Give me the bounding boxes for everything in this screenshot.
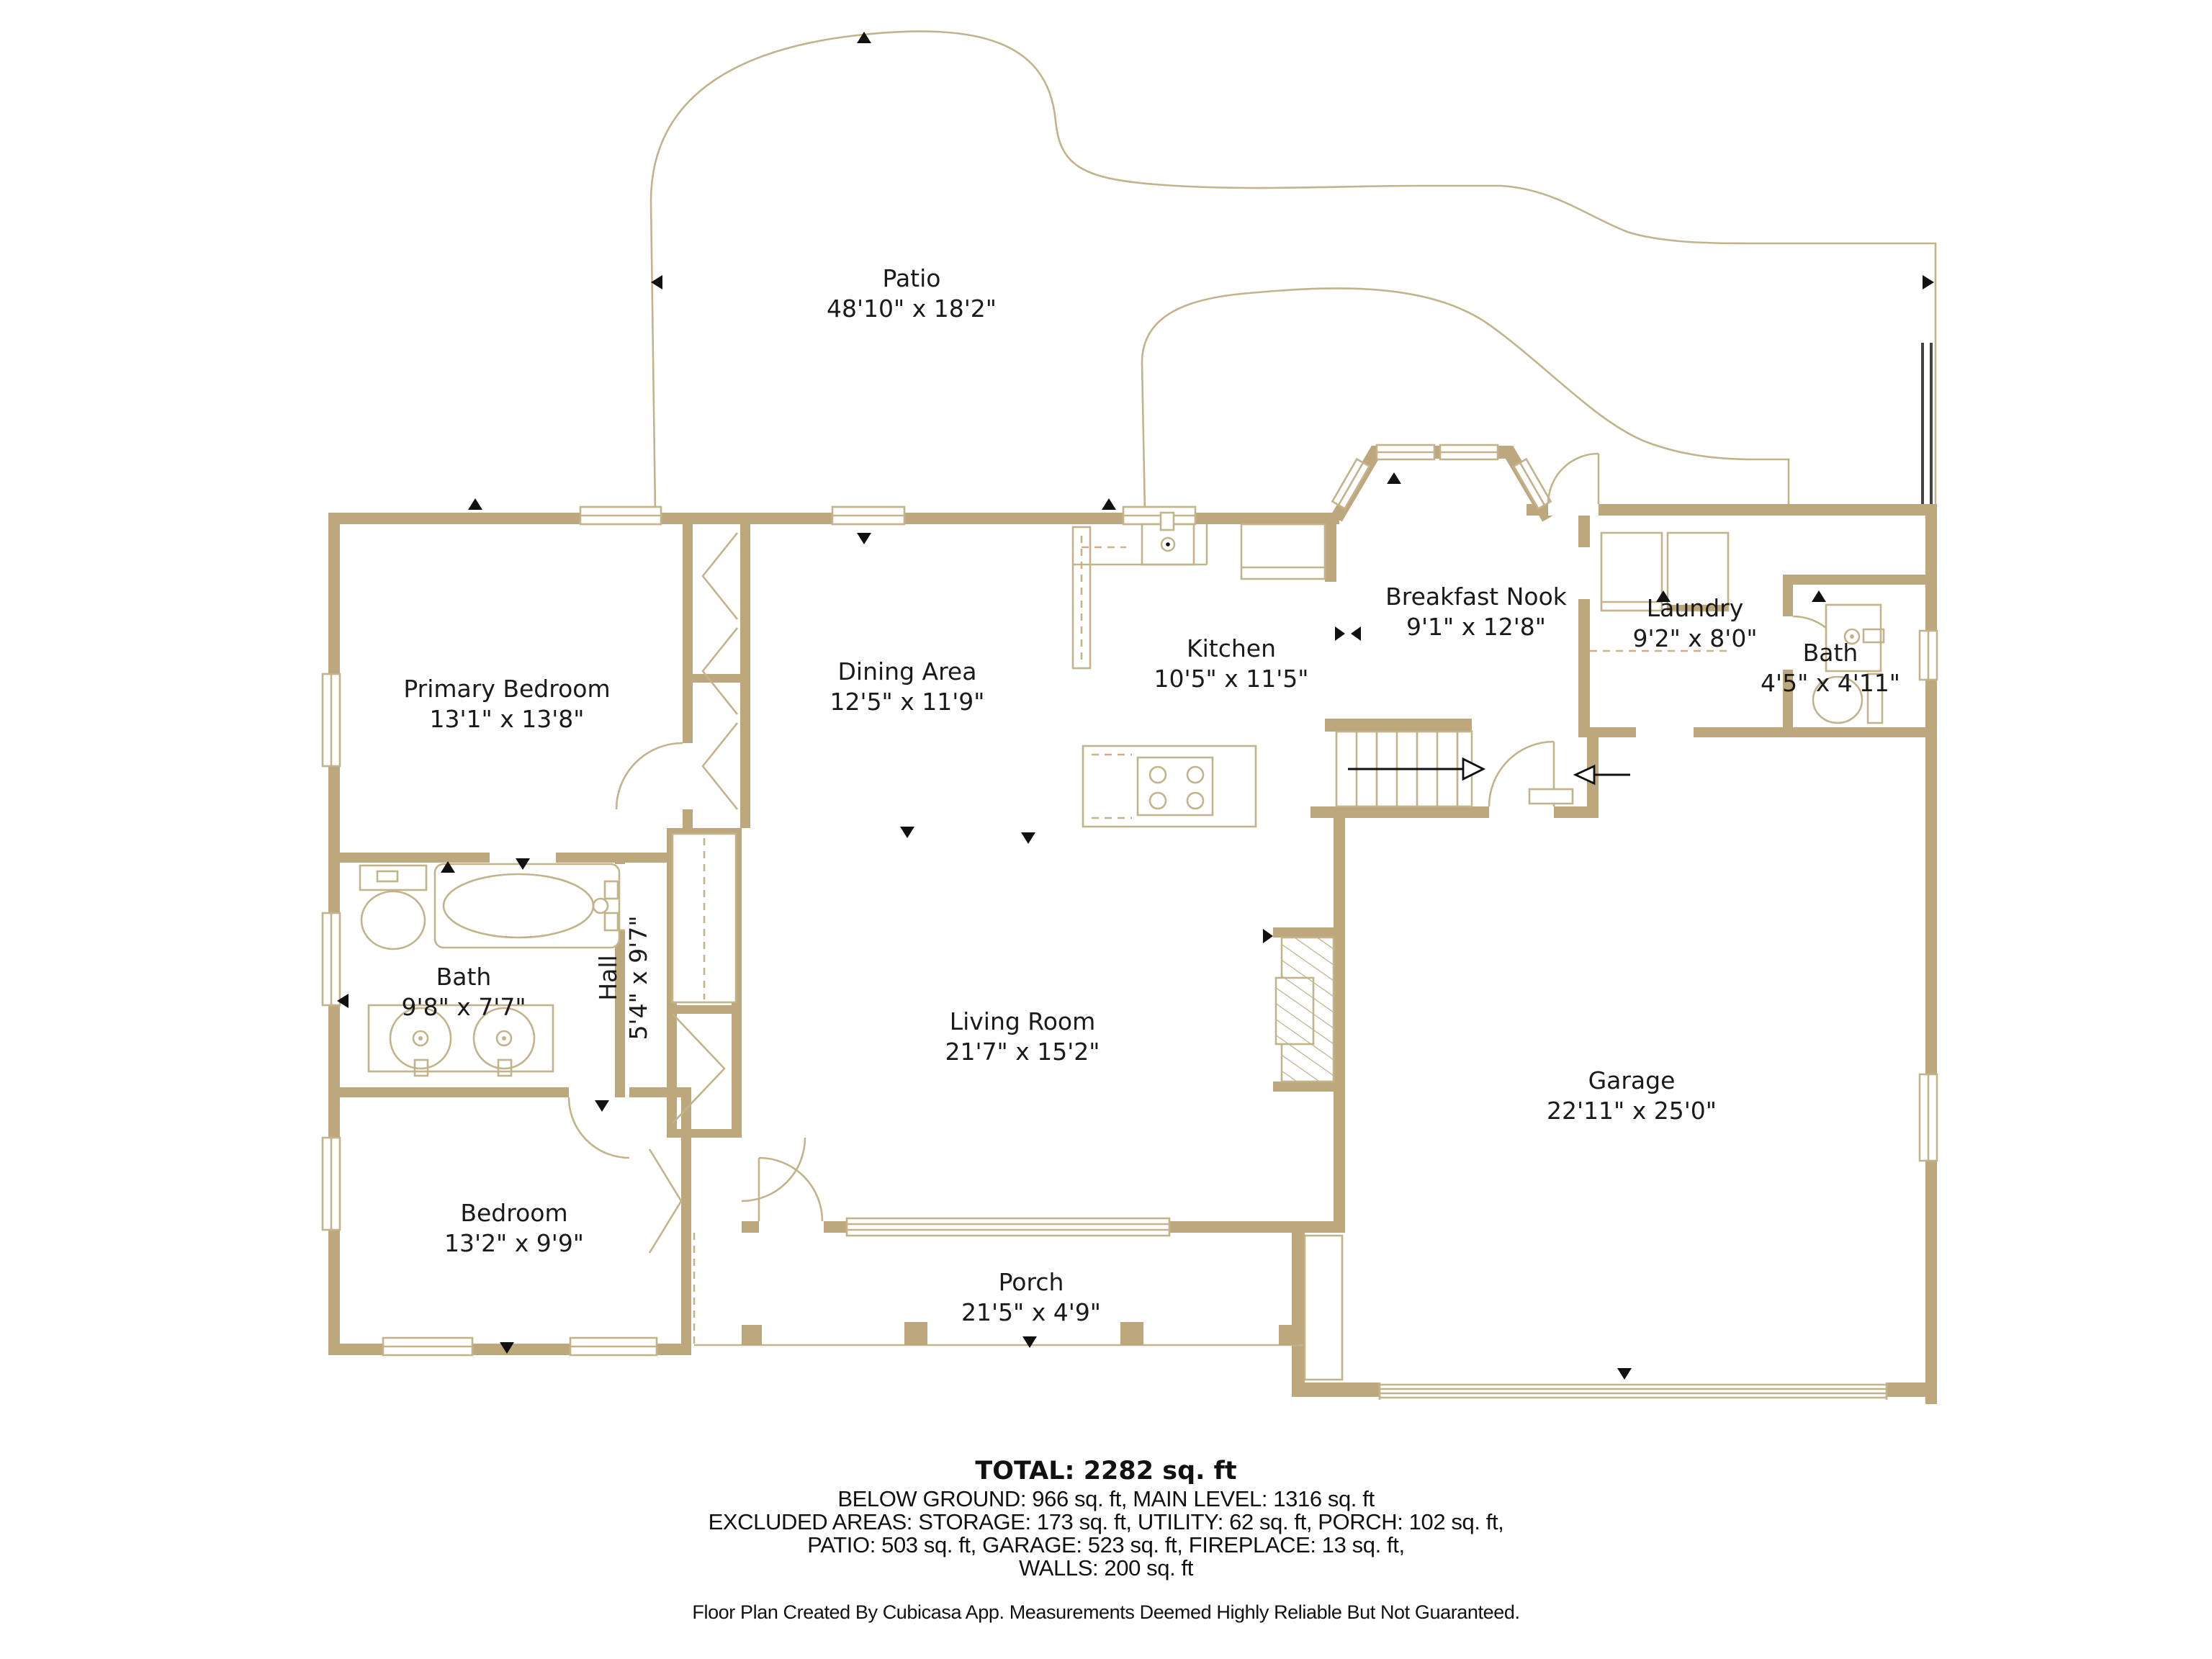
room-name: Porch [961,1267,1101,1298]
garage-door [1380,1382,1887,1400]
closet-bifold-door [673,1014,724,1123]
room-label-garage: Garage 22'11" x 25'0" [1547,1066,1717,1126]
room-dimensions: 48'10" x 18'2" [827,294,997,324]
bathtub [435,864,619,948]
room-label-kitchen: Kitchen 10'5" x 11'5" [1154,634,1309,694]
area-breakdown-line: WALLS: 200 sq. ft [0,1557,2212,1583]
disclaimer-text: Floor Plan Created By Cubicasa App. Meas… [0,1601,2212,1623]
kitchen-counter [1073,527,1090,668]
porch-door [759,1158,822,1221]
porch-post [1279,1325,1299,1345]
window [383,1338,472,1355]
room-dimensions: 9'8" x 7'7" [402,992,526,1022]
area-breakdown-line: BELOW GROUND: 966 sq. ft, MAIN LEVEL: 13… [0,1488,2212,1514]
closet-bifold-door [703,628,737,714]
primary-bedroom-door [616,743,683,809]
room-label-hall: Hall 5'4" x 9'7" [593,916,654,1040]
room-label-primary-bedroom: Primary Bedroom 13'1" x 13'8" [403,674,610,734]
room-label-porch: Porch 21'5" x 4'9" [961,1267,1101,1328]
window [1920,631,1937,680]
room-dimensions: 12'5" x 11'9" [830,687,985,717]
total-area-text: TOTAL: 2282 sq. ft [0,1457,2212,1486]
room-dimensions: 13'2" x 9'9" [444,1228,584,1259]
room-dimensions: 22'11" x 25'0" [1547,1096,1717,1126]
room-name: Dining Area [830,657,985,687]
room-dimensions: 10'5" x 11'5" [1154,664,1309,694]
closets [649,533,737,1253]
window-band [847,1218,1169,1236]
room-name: Patio [827,264,997,294]
closet-bifold-door [703,723,737,809]
room-dimensions: 9'1" x 12'8" [1385,612,1567,642]
window [323,913,340,1005]
garage-elements [1305,1236,1887,1400]
bay-window-wall [1336,452,1548,518]
bedroom-closet-door [649,1149,681,1253]
room-dimensions: 9'2" x 8'0" [1633,624,1758,654]
room-name: Primary Bedroom [403,674,610,704]
room-label-bath: Bath 9'8" x 7'7" [402,962,526,1022]
room-name: Laundry [1633,593,1758,624]
window [570,1338,657,1355]
refrigerator [1241,524,1325,579]
room-label-bath-small: Bath 4'5" x 4'11" [1761,638,1900,698]
fireplace [1273,927,1345,1092]
bay-window [1377,445,1434,459]
window [1920,1074,1937,1161]
room-label-living-room: Living Room 21'7" x 15'2" [945,1007,1100,1067]
porch-post [742,1325,762,1345]
room-dimensions: 21'5" x 4'9" [961,1298,1101,1328]
room-label-patio: Patio 48'10" x 18'2" [827,264,997,324]
staircase [1336,732,1630,806]
room-name: Hall [593,916,624,1040]
area-breakdown-line: EXCLUDED AREAS: STORAGE: 173 sq. ft, UTI… [0,1511,2212,1537]
floor-plan-page: Patio 48'10" x 18'2" Primary Bedroom 13'… [0,0,2212,1659]
porch-post [904,1322,927,1345]
toilet-bowl [361,891,425,949]
room-name: Breakfast Nook [1385,582,1567,612]
room-label-laundry: Laundry 9'2" x 8'0" [1633,593,1758,654]
room-label-breakfast-nook: Breakfast Nook 9'1" x 12'8" [1385,582,1567,642]
window [1123,507,1195,524]
room-name: Bedroom [444,1198,584,1228]
room-dimensions: 4'5" x 4'11" [1761,668,1900,698]
toilet-tank [360,866,426,890]
window [580,507,661,524]
patio-door [1548,454,1599,504]
room-name: Living Room [945,1007,1100,1037]
area-breakdown-line: PATIO: 503 sq. ft, GARAGE: 523 sq. ft, F… [0,1534,2212,1560]
entry-threshold [1529,789,1573,804]
room-label-bedroom: Bedroom 13'2" x 9'9" [444,1198,584,1259]
window [323,674,340,766]
window [323,1138,340,1230]
room-dimensions: 5'4" x 9'7" [624,916,654,1040]
floor-plan-drawing [0,0,2212,1659]
garage-storage-nook [1305,1236,1342,1380]
porch-post [1120,1322,1143,1345]
bay-window [1440,445,1498,459]
room-dimensions: 21'7" x 15'2" [945,1037,1100,1067]
room-label-dining-area: Dining Area 12'5" x 11'9" [830,657,985,717]
window [832,507,904,524]
room-dimensions: 13'1" x 13'8" [403,704,610,734]
room-name: Bath [1761,638,1900,668]
room-name: Bath [402,962,526,992]
closet-bifold-door [703,533,737,619]
room-name: Garage [1547,1066,1717,1096]
room-name: Kitchen [1154,634,1309,664]
